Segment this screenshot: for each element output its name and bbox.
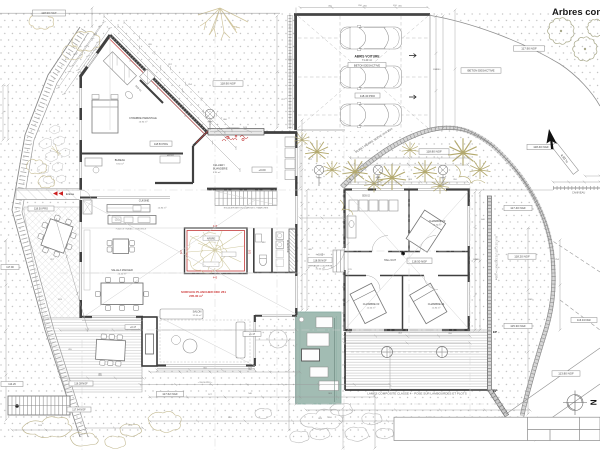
svg-text:71.40 m²: 71.40 m² <box>362 58 372 62</box>
svg-text:118.95 NGF: 118.95 NGF <box>313 260 327 263</box>
svg-text:115.30 NGF: 115.30 NGF <box>510 324 526 328</box>
svg-text:BETON DESACTIVE: BETON DESACTIVE <box>354 63 380 67</box>
svg-text:116.28 NGF: 116.28 NGF <box>74 383 88 386</box>
svg-text:325: 325 <box>248 249 252 254</box>
svg-text:SURFACE PLANCHER RDC 261: SURFACE PLANCHER RDC 261 <box>181 290 226 294</box>
svg-text:8.90 m²: 8.90 m² <box>213 171 221 174</box>
svg-text:118.40 NGF: 118.40 NGF <box>533 145 549 149</box>
svg-text:BUANDERIE: BUANDERIE <box>286 240 289 253</box>
svg-text:117.64 NGF: 117.64 NGF <box>72 409 86 412</box>
svg-text:+0.17: +0.17 <box>130 326 137 329</box>
svg-text:LAMES COMPOSITE CLASSE 4 - POS: LAMES COMPOSITE CLASSE 4 - POSE SUR LAMB… <box>367 392 466 396</box>
svg-text:TERRASSE COUVERTE: TERRASSE COUVERTE <box>308 265 333 268</box>
svg-text:+0.65: +0.65 <box>317 254 324 257</box>
svg-text:118.50 NGF: 118.50 NGF <box>412 259 427 263</box>
svg-text:+ 116.90 PRO +: + 116.90 PRO + <box>198 382 214 384</box>
svg-text:9.50 m²: 9.50 m² <box>116 163 124 166</box>
svg-text:MUR DE CLOTURE EXISTANT H=1.80: MUR DE CLOTURE EXISTANT H=1.80m <box>495 236 498 280</box>
svg-text:ABRIS VOITURE: ABRIS VOITURE <box>355 55 380 59</box>
svg-text:ESCALIER BETON QUARTZE 17 MARC: ESCALIER BETON QUARTZE 17 MARCHES <box>224 207 269 210</box>
svg-text:118.80 NGF: 118.80 NGF <box>426 150 442 154</box>
svg-text:12.60 m²: 12.60 m² <box>367 307 376 310</box>
svg-text:16.90 m²: 16.90 m² <box>139 121 148 124</box>
svg-text:SALON: SALON <box>193 310 202 314</box>
svg-text:Arbres conservés: Arbres conservés <box>552 7 600 18</box>
svg-text:N: N <box>589 400 598 406</box>
svg-text:BUANDERIE: BUANDERIE <box>213 167 228 170</box>
svg-text:12.80 m²: 12.80 m² <box>432 307 441 310</box>
svg-text:EP: EP <box>493 389 498 393</box>
svg-text:113.80 NGF: 113.80 NGF <box>558 372 574 376</box>
svg-text:118.20 NGF: 118.20 NGF <box>514 255 530 259</box>
svg-text:WC: WC <box>262 242 266 244</box>
svg-text:CHAMBRE PARENTALE: CHAMBRE PARENTALE <box>129 117 157 120</box>
svg-text:CUISINE: CUISINE <box>139 199 150 203</box>
svg-text:116.34 NGF: 116.34 NGF <box>577 318 591 322</box>
svg-text:117.40 NGF: 117.40 NGF <box>510 206 526 210</box>
svg-text:118.40 PRO: 118.40 PRO <box>360 94 376 98</box>
svg-text:118.50 PRO: 118.50 PRO <box>34 207 48 211</box>
svg-text:SALLE A MANGER: SALLE A MANGER <box>111 269 133 272</box>
svg-text:32.60 m²: 32.60 m² <box>193 314 202 317</box>
svg-text:205.30 m²: 205.30 m² <box>189 294 203 298</box>
svg-text:117.90: 117.90 <box>6 266 14 269</box>
svg-text:118.90 NGF: 118.90 NGF <box>220 82 236 86</box>
svg-text:HALL NUIT: HALL NUIT <box>384 259 397 262</box>
svg-text:SDB 02: SDB 02 <box>362 196 371 198</box>
svg-text:CANIVEAU: CANIVEAU <box>572 191 585 195</box>
svg-text:117.62 NGF: 117.62 NGF <box>162 392 178 396</box>
svg-text:+0.00: +0.00 <box>258 168 266 172</box>
svg-text:114.26: 114.26 <box>8 383 16 386</box>
svg-text:Entrée: Entrée <box>66 192 75 196</box>
svg-text:117.90 NGF: 117.90 NGF <box>521 47 537 51</box>
svg-text:CHAMBRE 03: CHAMBRE 03 <box>363 302 380 306</box>
svg-text:BETON DESACTIVE: BETON DESACTIVE <box>467 69 494 73</box>
svg-text:14.80 m²: 14.80 m² <box>158 207 167 210</box>
svg-text:ARBRE: ARBRE <box>207 238 216 241</box>
svg-text:118.50 PRG: 118.50 PRG <box>154 142 168 146</box>
svg-text:BUREAU: BUREAU <box>115 159 126 162</box>
svg-text:EP: EP <box>493 330 497 334</box>
svg-text:13.30 m²: 13.30 m² <box>433 224 442 227</box>
svg-text:445: 445 <box>213 276 218 280</box>
svg-text:CHAMBRE 04: CHAMBRE 04 <box>428 302 445 306</box>
